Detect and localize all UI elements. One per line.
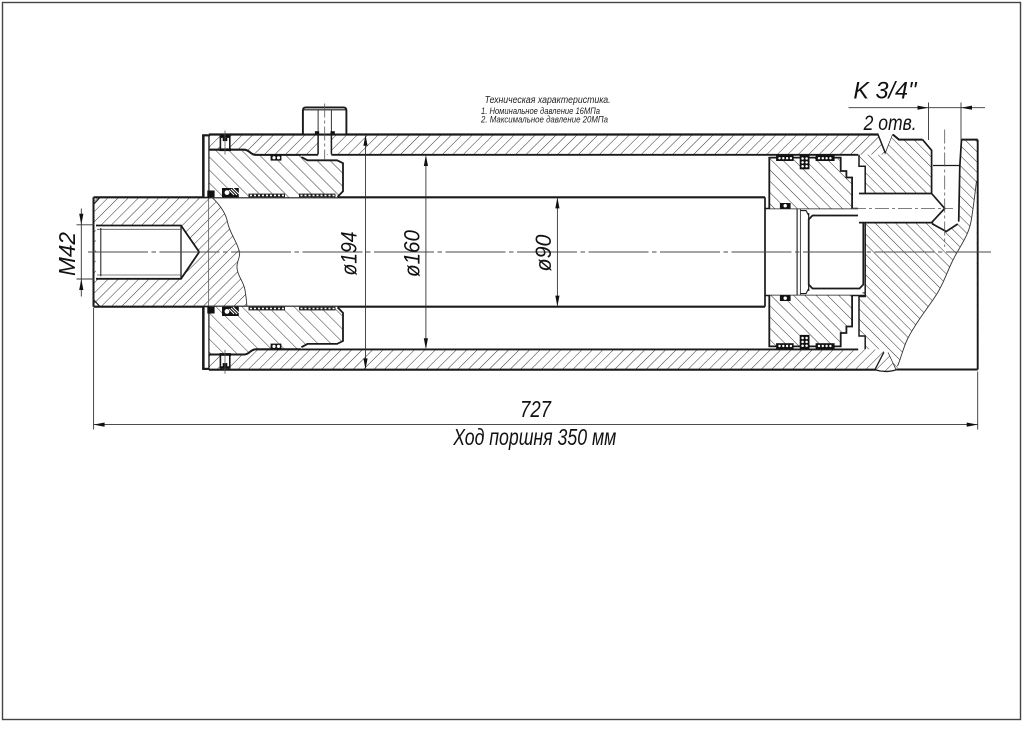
svg-text:2. Максимальное давление 20МП: 2. Максимальное давление 20МПа xyxy=(480,114,608,124)
svg-text:K 3/4": K 3/4" xyxy=(853,78,917,105)
svg-text:727: 727 xyxy=(520,396,552,422)
svg-text:M42: M42 xyxy=(54,232,80,276)
svg-text:Ход поршня 350 мм: Ход поршня 350 мм xyxy=(453,424,617,450)
svg-text:2 отв.: 2 отв. xyxy=(863,112,917,135)
svg-text:Техническая характеристика.: Техническая характеристика. xyxy=(485,95,611,106)
svg-text:ø90: ø90 xyxy=(531,234,556,272)
svg-text:ø194: ø194 xyxy=(337,232,362,276)
svg-text:ø160: ø160 xyxy=(400,229,425,277)
